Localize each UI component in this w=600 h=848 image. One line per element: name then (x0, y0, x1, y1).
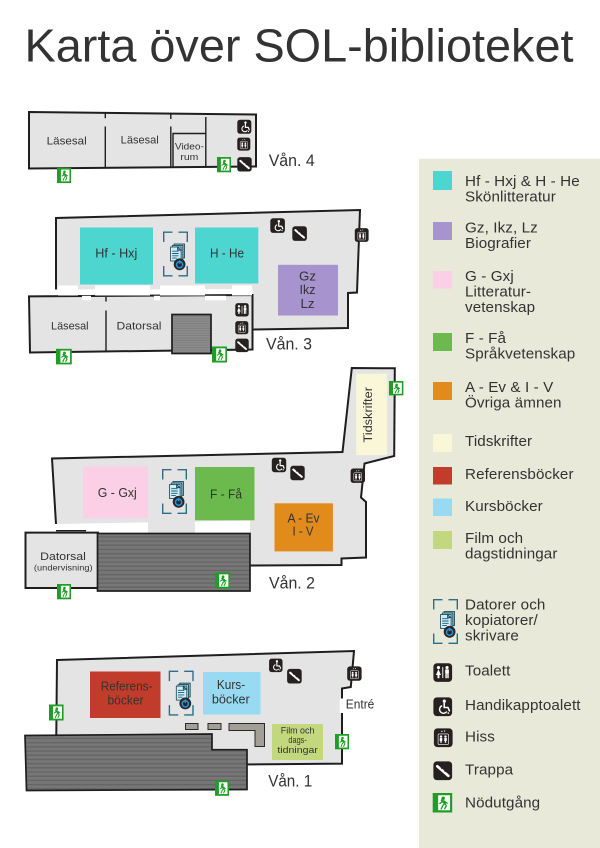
svg-text:G - Gxj: G - Gxj (98, 485, 137, 500)
svg-text:tidningar: tidningar (277, 745, 318, 755)
svg-text:I - V: I - V (293, 524, 314, 539)
svg-text:dagstidningar: dagstidningar (465, 546, 558, 563)
svg-text:Skönlitteratur: Skönlitteratur (465, 189, 556, 206)
svg-text:Litteratur-: Litteratur- (465, 284, 531, 301)
svg-text:Film och: Film och (465, 530, 523, 547)
svg-text:kopiatorer/: kopiatorer/ (465, 612, 539, 629)
svg-text:Vån. 1: Vån. 1 (268, 771, 312, 790)
svg-text:Trappa: Trappa (465, 762, 514, 779)
svg-text:skrivare: skrivare (465, 628, 519, 645)
svg-text:Hf - Hxj: Hf - Hxj (95, 246, 137, 261)
svg-text:Datorer och: Datorer och (465, 597, 545, 614)
svg-text:Kurs-: Kurs- (217, 677, 245, 692)
svg-text:Video-: Video- (175, 142, 204, 152)
svg-text:vetenskap: vetenskap (465, 299, 535, 316)
svg-text:H - He: H - He (210, 245, 244, 260)
svg-text:Gz, Ikz, Lz: Gz, Ikz, Lz (465, 220, 538, 237)
svg-text:Vån. 2: Vån. 2 (269, 574, 315, 593)
svg-text:Karta över SOL-biblioteket: Karta över SOL-biblioteket (25, 20, 574, 72)
svg-text:(undervisning): (undervisning) (34, 563, 93, 573)
svg-text:Läsesal: Läsesal (121, 135, 159, 147)
svg-text:Hiss: Hiss (465, 729, 495, 746)
svg-text:F - Få: F - Få (465, 330, 507, 347)
svg-text:Handikapptoalett: Handikapptoalett (465, 697, 581, 714)
svg-text:böcker: böcker (108, 693, 145, 708)
svg-text:dags-: dags- (288, 735, 306, 745)
svg-text:F - Få: F - Få (210, 487, 243, 502)
svg-text:Datorsal: Datorsal (117, 321, 162, 333)
svg-text:Vån. 4: Vån. 4 (269, 151, 315, 170)
svg-text:G - Gxj: G - Gxj (465, 268, 514, 285)
svg-text:Vån. 3: Vån. 3 (266, 335, 312, 354)
svg-text:Övriga ämnen: Övriga ämnen (465, 394, 562, 412)
svg-text:Tidskrifter: Tidskrifter (465, 433, 532, 450)
svg-text:böcker: böcker (212, 692, 251, 707)
svg-text:Kursböcker: Kursböcker (465, 498, 543, 515)
svg-text:Biografier: Biografier (465, 235, 531, 252)
svg-text:Referensböcker: Referensböcker (465, 466, 574, 483)
svg-text:Datorsal: Datorsal (40, 551, 86, 563)
svg-text:Språkvetenskap: Språkvetenskap (465, 346, 575, 363)
svg-text:rum: rum (180, 152, 198, 162)
svg-text:Läsesal: Läsesal (47, 136, 87, 148)
svg-text:A - Ev & I - V: A - Ev & I - V (465, 379, 554, 396)
svg-text:Läsesal: Läsesal (51, 321, 89, 333)
svg-text:Tidskrifter: Tidskrifter (361, 387, 375, 443)
svg-text:Lz: Lz (301, 296, 315, 311)
svg-text:Referens-: Referens- (101, 679, 153, 694)
svg-text:Hf - Hxj & H - He: Hf - Hxj & H - He (465, 173, 580, 190)
svg-text:Toalett: Toalett (465, 663, 511, 680)
svg-text:Nödutgång: Nödutgång (465, 795, 540, 812)
svg-text:Entré: Entré (346, 698, 375, 712)
